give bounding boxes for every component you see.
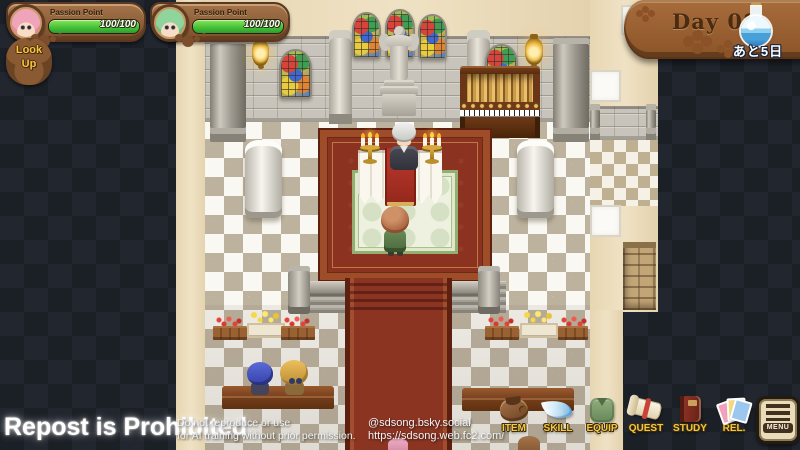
outer-wall-left [176,0,206,450]
balustrade-left [308,282,346,293]
wall-pilaster-left [210,38,246,142]
wing-icon [541,396,573,422]
white-tile [590,70,621,102]
wall-lamp-left [252,40,269,66]
planter-box [485,326,519,340]
menu-item-label: EQUIP [580,423,624,434]
menu-item-study[interactable]: STUDY [668,396,712,434]
scroll-icon [629,397,662,421]
menu-item-equip[interactable]: EQUIP [580,396,624,434]
menu-item-label: ITEM [492,423,536,434]
menu-item-item[interactable]: ITEM [492,396,536,434]
hamburger-menu-icon [766,404,790,421]
npc-blue-hair-seated [246,362,276,398]
round-pillar-right [517,140,554,218]
menu-item-label: SKILL [536,423,580,434]
outer-floor [590,140,658,206]
player-character [379,206,411,258]
candelabra-base [363,159,377,164]
party-panel-1: Passion Point 100/100 [6,2,146,42]
planter-box [520,323,558,338]
passion-gauge-value-1: 100/100 [100,19,136,30]
npc-blue-hair [247,362,273,385]
look-up-button[interactable]: Look Up [6,38,52,85]
book-icon [680,396,701,422]
brick-wall [623,242,656,310]
watermark-notice: Do not reproduce or use for AI training … [177,417,356,443]
game-map[interactable] [176,0,658,450]
planter-box [247,323,285,338]
portrait-avatar-1 [7,4,45,42]
player-hair [381,206,409,233]
game-screen: Repost is Prohibited Do not reproduce or… [0,0,800,450]
menu-item-quest[interactable]: QUEST [624,396,668,434]
day-banner: Day 08 あと5日 [624,0,800,59]
passion-point-label-1: Passion Point [50,8,103,17]
vest-icon [590,398,614,422]
wall-pilaster-right [553,38,589,142]
watermark-links: @sdsong.bsky.social https://sdsong.web.f… [368,417,504,443]
watermark-notice-line2: for AI training without prior permission… [177,430,356,443]
hair-bow [289,378,295,384]
stained-glass-window-left [279,49,312,99]
menu-button-label: MENU [763,423,793,433]
cards-icon [719,398,751,422]
flower-planter [485,316,519,338]
bench-left-backrest [222,386,334,396]
garden-wall-pillar [590,104,600,142]
menu-item-rel[interactable]: REL. [712,396,756,434]
menu-bar: ITEM SKILL EQUIP QUEST STUDY REL. MENU [492,396,800,444]
passion-gauge-1: 100/100 [48,19,140,34]
planter-box [558,326,588,340]
days-left-badge: あと5日 [722,41,794,60]
passion-gauge-value-2: 100/100 [244,19,280,30]
look-up-label-line2: Up [6,57,52,71]
menu-item-label: STUDY [668,423,712,434]
player-body [384,230,406,252]
statue-column [390,46,408,82]
organ-top [460,66,540,74]
white-tile [590,205,621,237]
menu-item-label: QUEST [624,423,668,434]
priest-hair [392,122,416,142]
round-pillar-left [245,140,282,218]
website-url: https://sdsong.web.fc2.com/ [368,430,504,443]
statue-plinth [382,94,416,116]
menu-button[interactable]: MENU [756,396,800,444]
balustrade-right [450,282,480,293]
npc-blonde-seated [279,360,311,398]
wall-lamp-right [525,38,543,65]
stained-glass-window-center1 [352,12,381,59]
organ-keyboard [460,110,540,117]
menu-item-label: REL. [712,423,756,434]
organ-stops [460,102,540,110]
aisle-step-shadows [350,283,447,311]
angel-statue [379,24,419,120]
marble-column-left [329,30,352,124]
watermark-notice-line1: Do not reproduce or use [177,417,356,430]
flower-planter [520,311,558,338]
passion-gauge-2: 100/100 [192,19,284,34]
social-handle: @sdsong.bsky.social [368,417,504,430]
menu-button-slot: MENU [756,396,800,444]
planter-box [213,326,247,340]
passion-point-label-2: Passion Point [194,8,247,17]
garden-wall-pillar [646,104,656,142]
candelabra-base [425,159,439,164]
stained-glass-window-center3 [418,14,447,60]
bench-left-seat [222,396,334,409]
planter-box [281,326,315,340]
flower-planter [213,316,247,338]
bag-icon [499,396,530,423]
menu-item-skill[interactable]: SKILL [536,396,580,434]
portrait-avatar-2 [151,4,189,42]
candelabra-right [422,132,442,168]
newel-post-left [288,266,310,314]
flower-planter [558,316,588,338]
priest-character [388,122,420,170]
look-up-label-line1: Look [6,43,52,57]
party-panel-2: Passion Point 100/100 [150,2,290,42]
flower-planter [247,311,285,338]
flower-planter [281,316,315,338]
candelabra-left [360,132,380,168]
newel-post-right [478,266,500,314]
clover-icon [642,6,649,13]
organ-pipes [460,74,540,102]
